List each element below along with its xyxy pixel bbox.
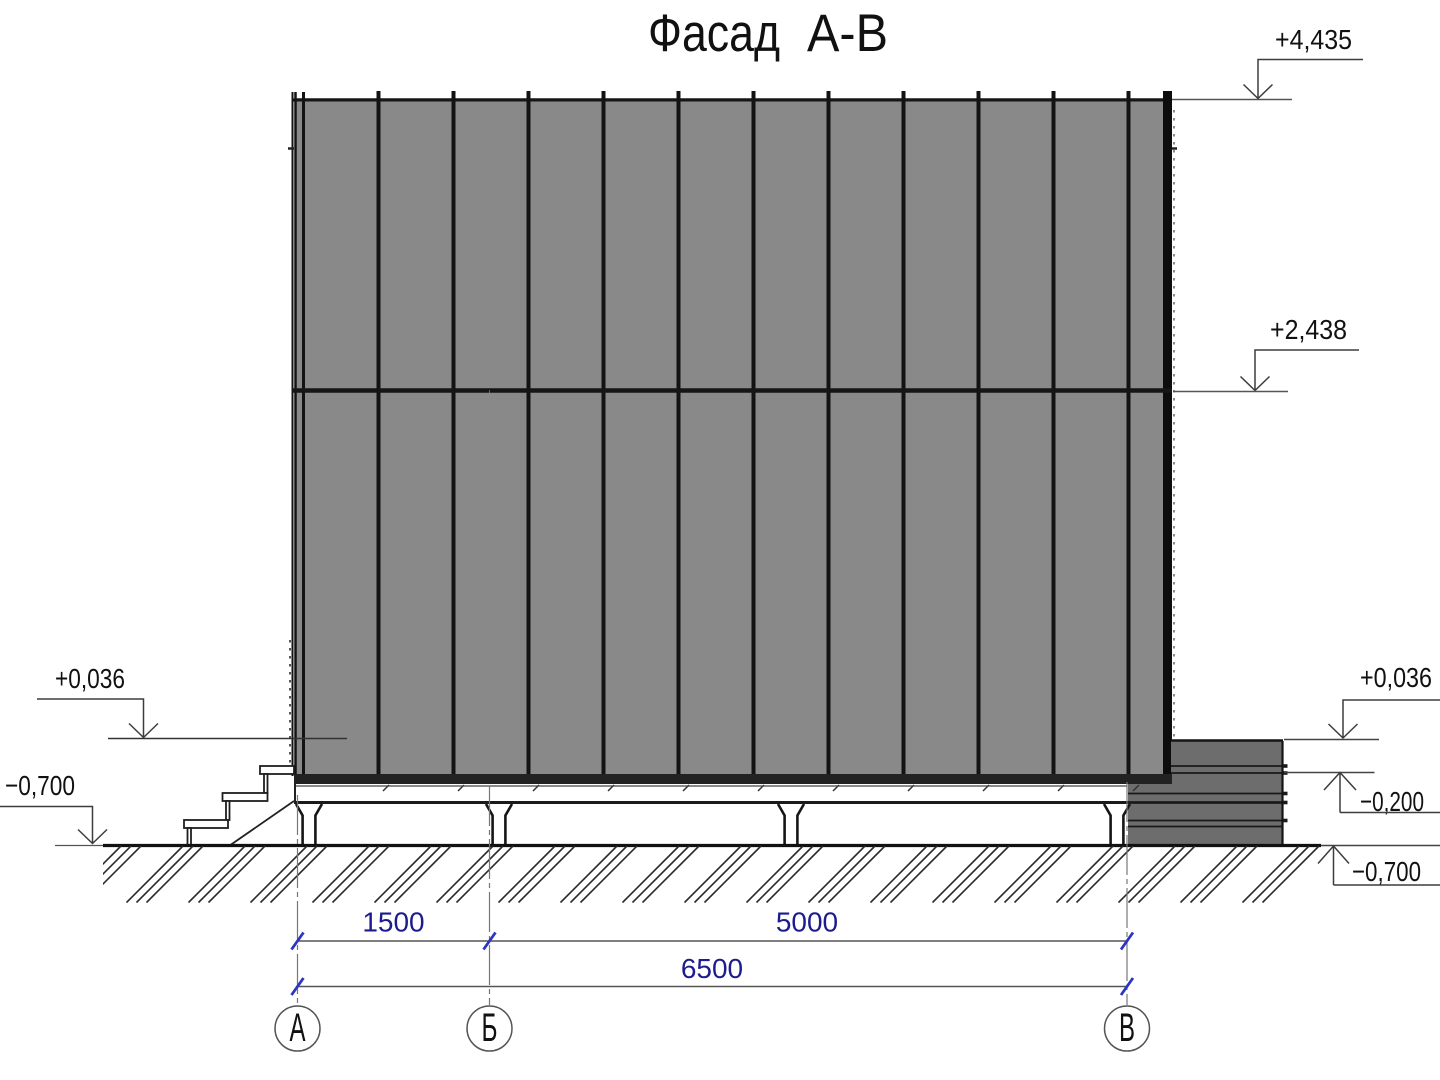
svg-text:+0,036: +0,036 xyxy=(1360,662,1432,693)
svg-text:+4,435: +4,435 xyxy=(1275,24,1352,55)
svg-text:5000: 5000 xyxy=(776,907,838,938)
svg-text:−0,700: −0,700 xyxy=(1352,856,1421,887)
svg-text:+2,438: +2,438 xyxy=(1270,314,1347,345)
svg-text:Фасад: Фасад xyxy=(648,4,780,63)
svg-text:А: А xyxy=(290,1006,306,1050)
svg-text:6500: 6500 xyxy=(681,953,743,984)
svg-text:А-В: А-В xyxy=(807,4,888,63)
svg-text:−0,700: −0,700 xyxy=(5,770,75,801)
svg-text:В: В xyxy=(1119,1006,1135,1050)
svg-text:1500: 1500 xyxy=(362,907,424,938)
svg-text:Б: Б xyxy=(482,1006,498,1050)
svg-text:+0,036: +0,036 xyxy=(55,663,125,694)
